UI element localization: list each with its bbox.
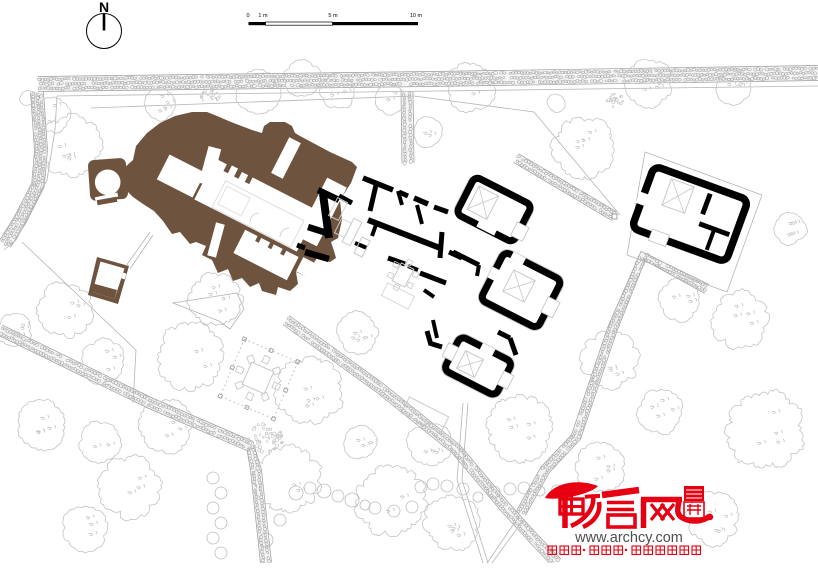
svg-text:0: 0 [246,13,249,19]
svg-text:N: N [99,0,109,15]
svg-text:www.archcy.com: www.archcy.com [574,530,683,546]
svg-text:10 m: 10 m [410,13,423,19]
svg-text:5 m: 5 m [328,13,338,19]
svg-text:1 m: 1 m [258,13,268,19]
